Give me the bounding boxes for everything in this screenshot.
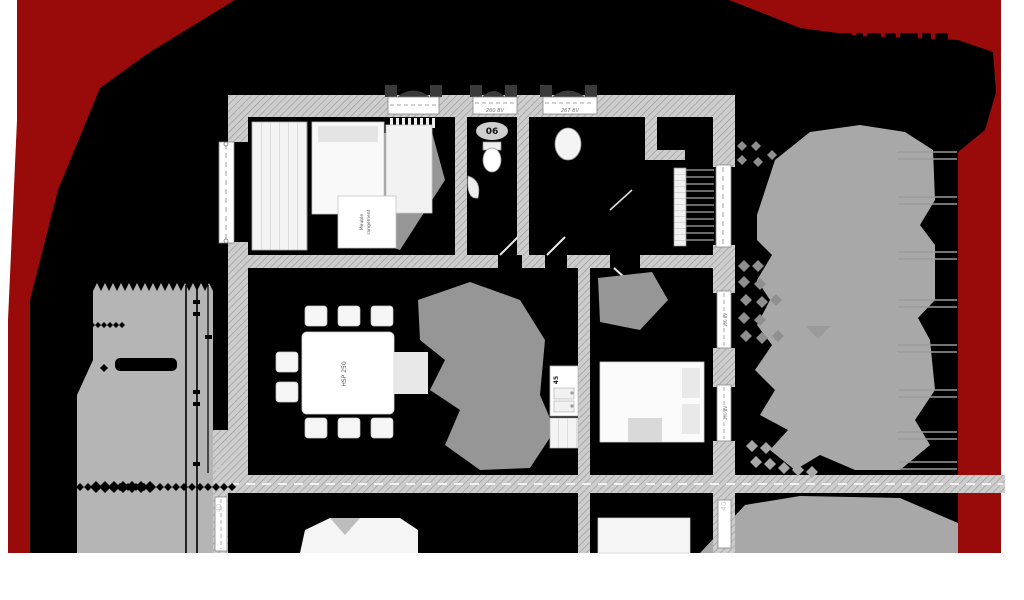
dim-40-b: 40: [215, 504, 223, 513]
title-text-illegible: [799, 33, 948, 46]
terrace: [77, 291, 213, 553]
washbasin: [555, 128, 581, 160]
floor-plan-canvas: 260 BV 267 BV 160 BV 160 BV: [0, 0, 1024, 600]
dining-table-extension: [394, 352, 428, 394]
bed-3: [600, 362, 704, 442]
storage-unit-label-1: Meuble: [359, 214, 365, 231]
side-window-1: 160 BV: [717, 291, 731, 348]
sink-width-label: 45: [553, 376, 560, 384]
room-number: 06: [486, 127, 499, 137]
dim-40-c: 40: [720, 502, 728, 511]
bed-5: [598, 518, 690, 553]
wardrobe: [252, 122, 307, 250]
kitchen-sink-unit: 45: [550, 366, 578, 448]
dim-40-a: 40: [215, 464, 223, 473]
storage-unit: Meuble rangement: [338, 196, 396, 248]
right-bay-window: [716, 165, 731, 247]
side-window-label-1: 160 BV: [723, 313, 728, 328]
storage-unit-label-2: rangement: [366, 209, 372, 234]
side-window-2: 160 BV: [717, 385, 731, 441]
tree-canopy: [755, 125, 935, 470]
left-wall-window: [219, 142, 234, 243]
window-head-label-2: 267 BV: [561, 108, 580, 114]
floor-plan-drawing: 260 BV 267 BV 160 BV 160 BV: [0, 0, 1024, 600]
dining-table: HSP 250: [302, 332, 394, 414]
side-window-label-2: 160 BV: [723, 406, 728, 421]
window-head-label-1: 260 BV: [486, 108, 505, 114]
towel-radiator: [674, 168, 686, 246]
toilet: [483, 148, 501, 172]
bed-1-pillow: [318, 126, 378, 142]
ceiling-height-label: HSP 250: [341, 361, 348, 386]
